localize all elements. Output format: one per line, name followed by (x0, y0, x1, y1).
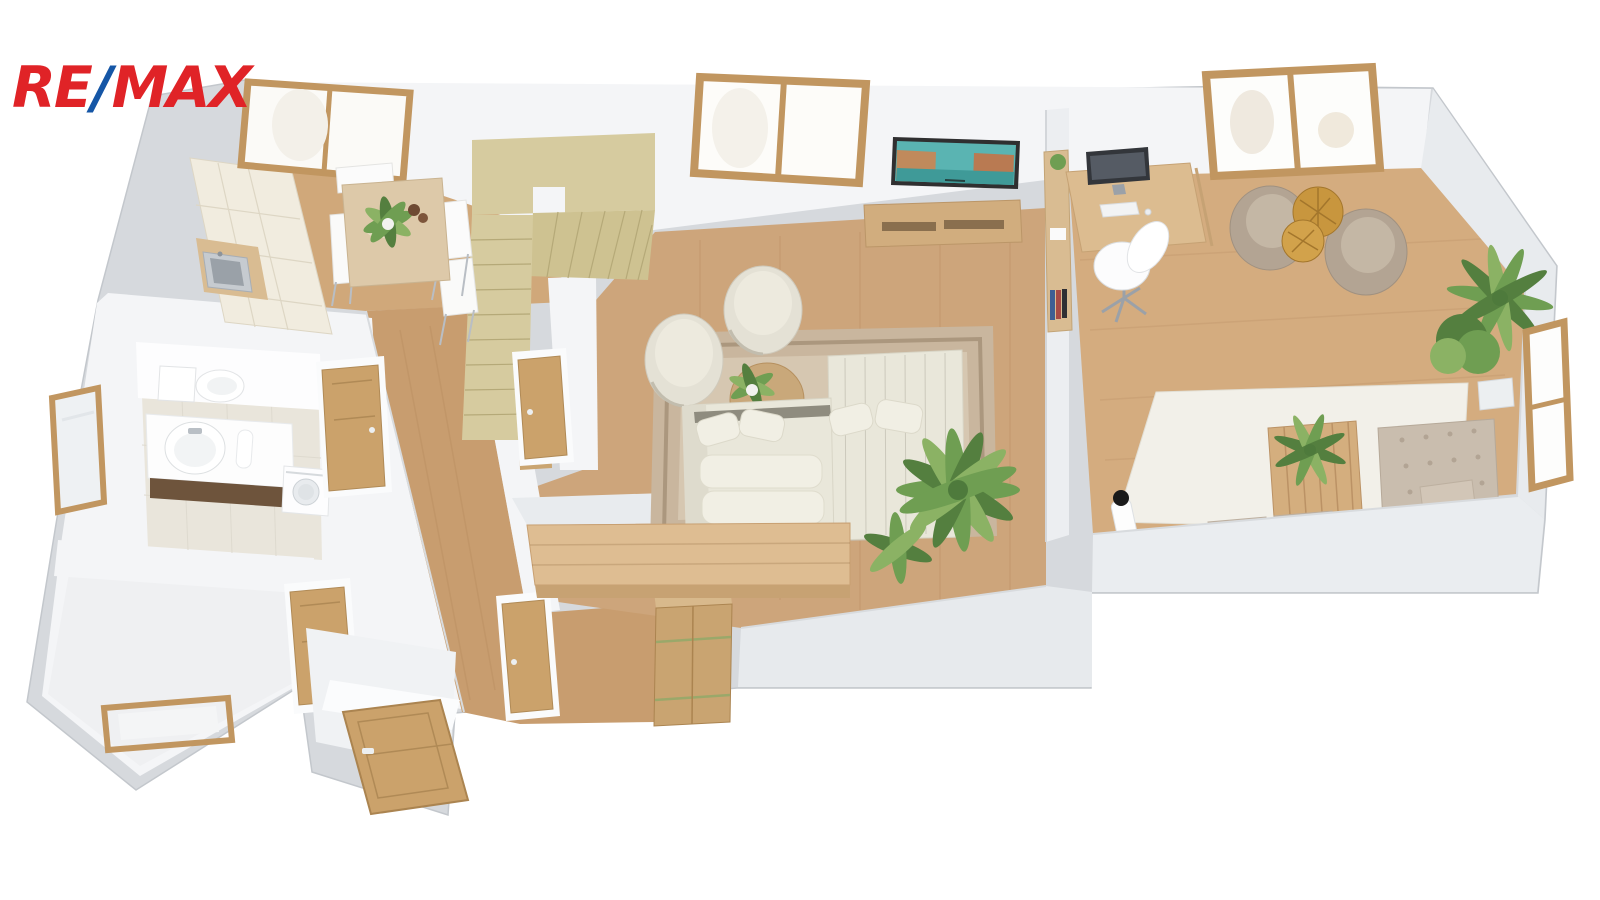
gondola (945, 180, 965, 181)
seat-cushion-1 (700, 455, 822, 488)
logo-re: RE (12, 55, 91, 121)
seat-cushion-2 (702, 491, 824, 524)
living-window (694, 77, 866, 183)
plant-pot (746, 384, 758, 396)
window-curtain (272, 89, 328, 161)
floor-plan-render (0, 0, 1600, 900)
vanity (146, 414, 294, 508)
monitor-screen (1090, 152, 1146, 180)
remax-logo: RE/MAX (12, 60, 250, 117)
kitchen-island-counter (527, 523, 850, 598)
monitor-stand (1112, 184, 1126, 195)
mouse (1145, 209, 1151, 215)
wall-mirror (52, 388, 104, 512)
book-spine (1056, 290, 1061, 319)
venice-wall-art (891, 137, 1020, 189)
towel-roll (236, 430, 254, 469)
window-curtain (712, 88, 768, 168)
floor-plan-page: RE/MAX (0, 0, 1600, 900)
door-handle (527, 409, 533, 415)
door-living (512, 348, 574, 466)
sink-faucet (188, 428, 202, 434)
window-curtain (1230, 90, 1274, 154)
wardrobe-cabinet (654, 588, 732, 726)
slat-coffee-table (1268, 412, 1362, 517)
book-spine (1050, 290, 1055, 320)
tv-console (864, 200, 1022, 247)
round-lounge-chair-2 (645, 314, 723, 406)
storage-box (1050, 228, 1066, 240)
shelf-plant (1050, 154, 1066, 170)
sink-basin (210, 258, 244, 286)
entrance-door-handle (362, 748, 374, 754)
pinecone-decor (408, 204, 420, 216)
keyboard (1100, 202, 1139, 217)
logo-slash: / (91, 55, 112, 121)
window-decor (1318, 112, 1354, 148)
sink-faucet (218, 252, 223, 257)
entrance (306, 628, 468, 814)
door-hall-lower (496, 591, 560, 721)
book-spine (1062, 289, 1067, 318)
study-window-right (1526, 322, 1570, 488)
pinecone-decor-2 (418, 213, 428, 223)
round-lounge-chair-1 (724, 266, 802, 354)
stairwell-notch (533, 187, 565, 213)
door-handle (511, 659, 517, 665)
door-bathroom (316, 356, 392, 498)
plant-pot (1478, 378, 1514, 410)
door-handle (369, 427, 375, 433)
study-window-top (1206, 67, 1380, 176)
logo-max: MAX (112, 55, 251, 121)
